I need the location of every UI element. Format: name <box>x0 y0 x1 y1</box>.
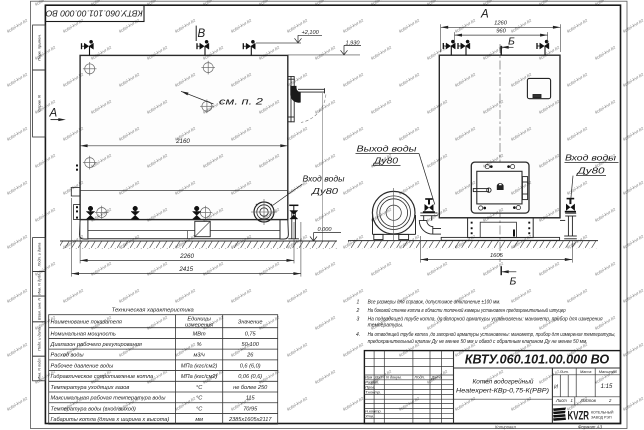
svg-text:МПа (кгс/см2): МПа (кгс/см2) <box>181 363 218 369</box>
svg-text:960: 960 <box>496 29 506 35</box>
svg-text:Рабочее давление воды: Рабочее давление воды <box>51 363 114 369</box>
svg-text:Максимальная рабочая температу: Максимальная рабочая температура воды <box>51 396 166 402</box>
svg-text:%: % <box>197 342 202 348</box>
svg-text:На боковой стенке котла в обла: На боковой стенке котла в области топочн… <box>368 307 566 314</box>
svg-text:Б: Б <box>510 276 517 288</box>
svg-text:Вход воды: Вход воды <box>303 174 346 184</box>
svg-text:26: 26 <box>246 353 254 359</box>
svg-text:А: А <box>480 9 489 21</box>
svg-text:Подп.: Подп. <box>415 374 425 379</box>
svg-text:В: В <box>198 28 206 40</box>
svg-text:°С: °С <box>196 385 203 391</box>
svg-text:Формат А3: Формат А3 <box>578 424 603 429</box>
svg-text:см. п. 2: см. п. 2 <box>219 97 264 108</box>
svg-text:Б: Б <box>508 36 515 48</box>
svg-text:Подп. и дата: Подп. и дата <box>38 327 42 351</box>
svg-text:Ду80: Ду80 <box>311 187 339 196</box>
svg-text:Выход воды: Выход воды <box>357 144 418 154</box>
svg-text:И: И <box>554 385 558 391</box>
svg-text:°С: °С <box>196 396 203 402</box>
svg-text:Взам. инв. N: Взам. инв. N <box>38 298 42 320</box>
svg-text:70/95: 70/95 <box>243 406 258 412</box>
svg-text:2385х1605х2117: 2385х1605х2117 <box>228 417 272 423</box>
svg-text:1: 1 <box>571 398 573 403</box>
svg-text:Копировал: Копировал <box>495 424 516 429</box>
svg-text:м3/ч: м3/ч <box>193 353 204 359</box>
svg-text:не более 250: не более 250 <box>233 385 268 391</box>
svg-text:Heatexpert-КВр-0,75-К(РВР): Heatexpert-КВр-0,75-К(РВР) <box>456 388 549 394</box>
svg-text:1: 1 <box>357 300 360 306</box>
svg-text:Утв.: Утв. <box>365 414 374 419</box>
svg-text:°С: °С <box>196 406 203 412</box>
svg-text:2260: 2260 <box>179 253 194 260</box>
svg-text:Лист: Лист <box>555 398 567 403</box>
svg-text:3: 3 <box>357 316 360 322</box>
svg-text:КВТУ.060.101.00.000 ВО: КВТУ.060.101.00.000 ВО <box>465 353 610 367</box>
svg-text:На отводящей трубе котла ,до з: На отводящей трубе котла ,до запорной ар… <box>368 331 616 338</box>
svg-text:1:15: 1:15 <box>601 384 613 390</box>
svg-text:1,930: 1,930 <box>346 40 361 46</box>
svg-text:Масса: Масса <box>580 369 592 374</box>
svg-text:Температура уходящих газов: Температура уходящих газов <box>51 385 130 391</box>
svg-text:1260: 1260 <box>494 21 508 27</box>
svg-text:Ду80: Ду80 <box>576 167 605 176</box>
svg-text:Техническая характеристика: Техническая характеристика <box>112 308 195 314</box>
svg-text:Значение: Значение <box>238 320 263 326</box>
svg-text:предохранительный клапан Ду н: предохранительный клапан Ду не менее 50 … <box>368 338 588 345</box>
svg-text:А: А <box>49 108 58 120</box>
svg-text:0,6 (6,0): 0,6 (6,0) <box>240 363 261 369</box>
svg-text:0.000: 0.000 <box>318 227 333 233</box>
svg-text:0,75: 0,75 <box>245 331 257 337</box>
svg-text:Наименование показателя: Наименование показателя <box>51 320 122 326</box>
svg-text:Габариты котла (длина х ширина: Габариты котла (длина х ширина х высота) <box>51 417 170 423</box>
svg-text:KVZR: KVZR <box>568 410 590 422</box>
svg-text:2: 2 <box>356 308 360 314</box>
svg-text:КОТЕЛЬНЫЙ: КОТЕЛЬНЫЙ <box>591 411 614 415</box>
svg-text:ЗАВОД РЭП: ЗАВОД РЭП <box>591 416 612 420</box>
svg-text:1605: 1605 <box>490 253 504 259</box>
svg-text:Т.контр.: Т.контр. <box>365 389 381 394</box>
svg-text:2415: 2415 <box>178 266 193 273</box>
svg-text:МВт: МВт <box>193 331 206 337</box>
svg-text:Подп. и дата: Подп. и дата <box>38 243 42 267</box>
svg-text:Лит.: Лит. <box>559 369 569 374</box>
svg-text:+2,100: +2,100 <box>302 30 320 36</box>
svg-text:Номинальная мощность: Номинальная мощность <box>51 331 116 337</box>
svg-text:Все размеры для справок, допус: Все размеры для справок, допустимое откл… <box>368 300 501 306</box>
svg-text:КВТУ.060.101.00.000 ВО: КВТУ.060.101.00.000 ВО <box>45 8 142 18</box>
svg-text:Инв. N дубл.: Инв. N дубл. <box>38 273 42 295</box>
svg-text:4.: 4. <box>356 332 360 338</box>
svg-text:На подводящей трубе котла, до: На подводящей трубе котла, до запорной а… <box>368 315 603 322</box>
svg-text:мм: мм <box>195 417 203 423</box>
